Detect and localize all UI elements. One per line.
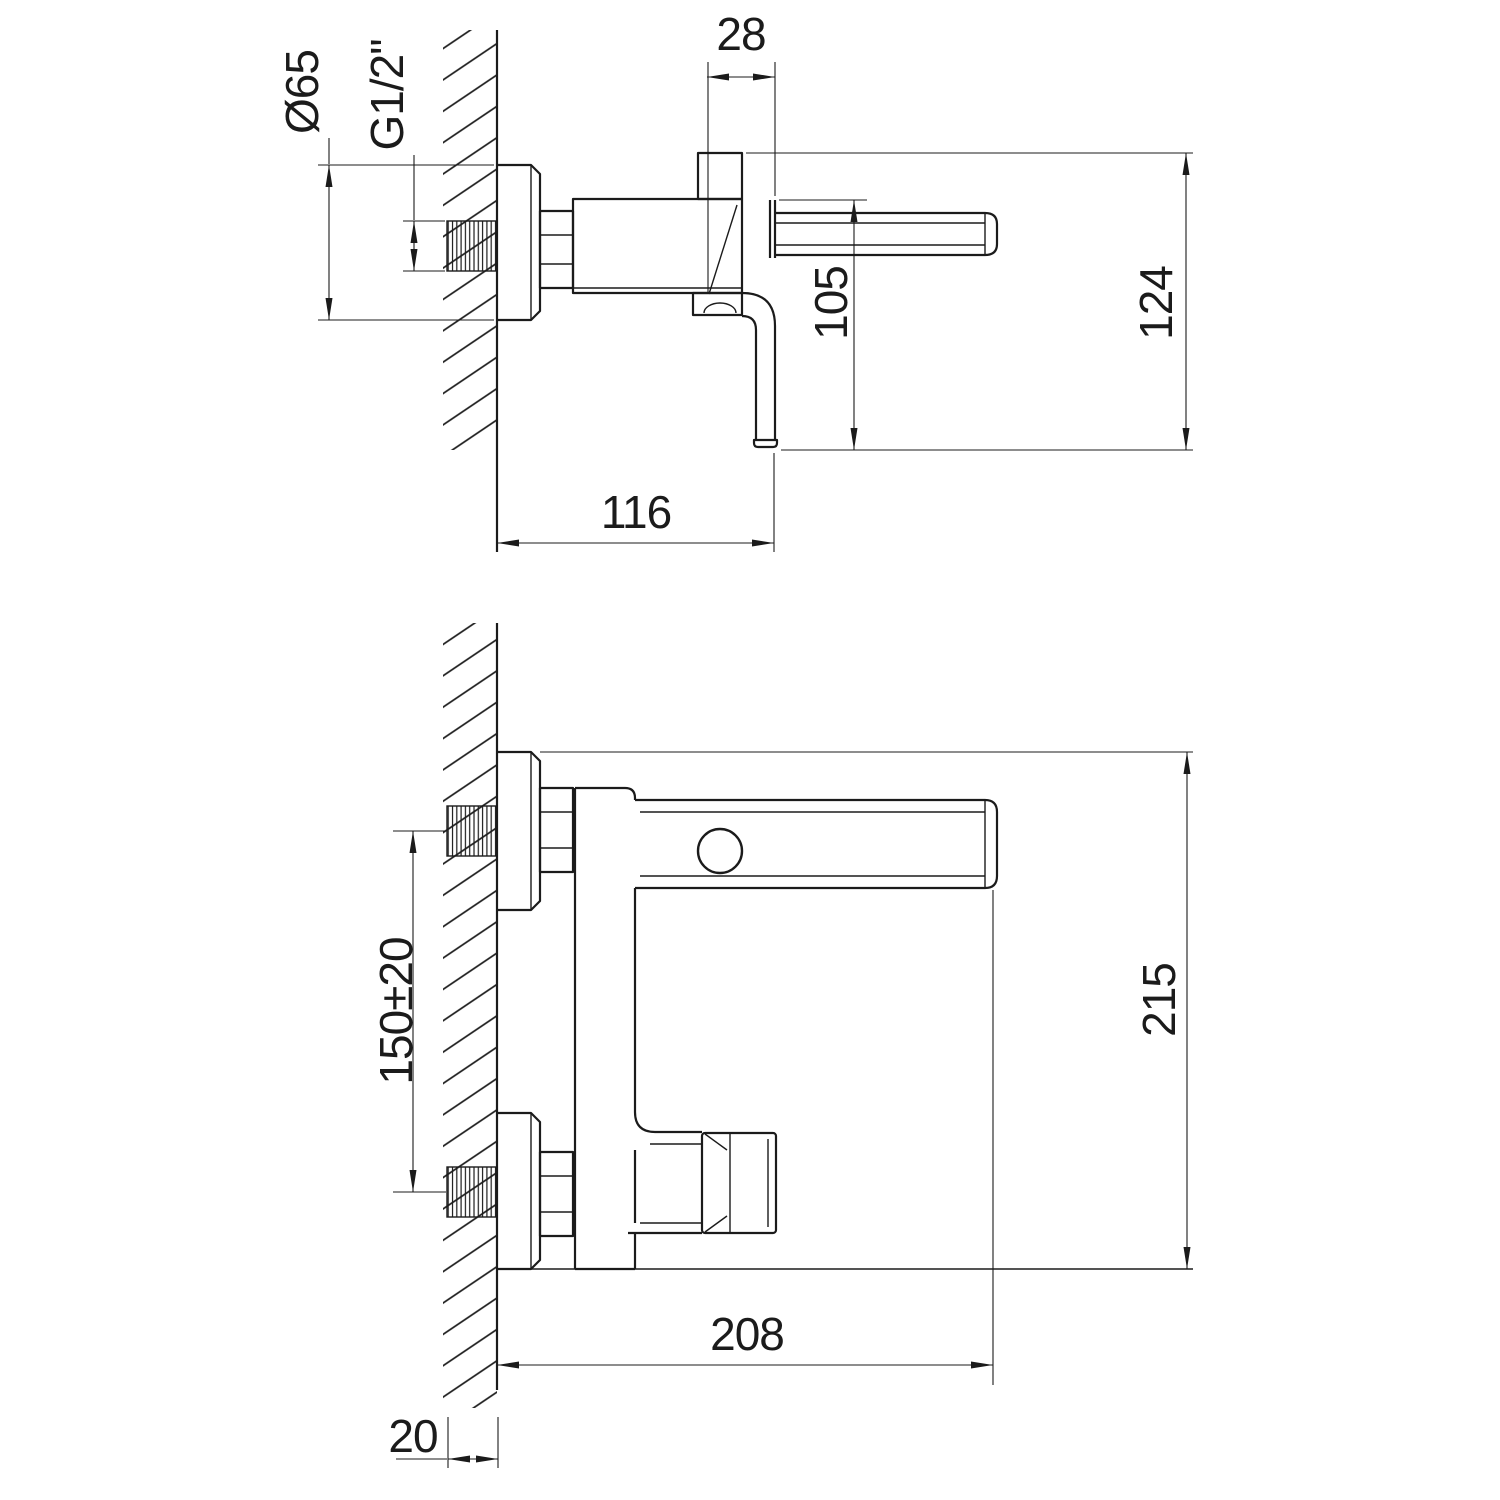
dim-label-215: 215 <box>1133 963 1185 1037</box>
dimension-215: 215 <box>540 752 1193 1269</box>
dimension-150: 150±20 <box>370 831 422 1192</box>
dim-label-diameter-65: Ø65 <box>276 50 328 134</box>
dimension-20: 20 <box>388 1410 498 1468</box>
dimension-105: 105 <box>779 200 867 450</box>
supply-thread-cold <box>447 1167 497 1217</box>
wall-section <box>443 30 497 552</box>
valve-body <box>573 62 775 315</box>
technical-drawing: Ø65 G1/2" 28 105 124 116 <box>0 0 1500 1500</box>
dimension-g-half-inch: G1/2" <box>361 39 445 271</box>
spout <box>628 1112 776 1233</box>
dim-label-116: 116 <box>601 486 671 538</box>
escutcheon-flange-hot <box>497 752 540 910</box>
handle-lever <box>635 800 997 888</box>
hex-nut-hot <box>540 788 573 872</box>
dim-label-28: 28 <box>716 8 765 60</box>
dimension-116: 116 <box>497 453 774 552</box>
drawing-page: Ø65 G1/2" 28 105 124 116 <box>0 0 1500 1500</box>
dim-label-208: 208 <box>710 1308 784 1360</box>
handle-lever <box>775 213 997 255</box>
dim-label-124: 124 <box>1130 266 1182 340</box>
side-view: Ø65 G1/2" 28 105 124 116 <box>276 8 1193 552</box>
dimension-208: 208 <box>497 890 993 1385</box>
dim-label-thread-size: G1/2" <box>361 39 413 150</box>
dim-label-150: 150±20 <box>370 937 422 1084</box>
lever-hole <box>698 829 742 873</box>
supply-thread-hot <box>447 806 497 856</box>
escutcheon-flange <box>497 165 540 320</box>
hex-nut-cold <box>540 1152 573 1236</box>
dim-label-105: 105 <box>805 266 857 340</box>
escutcheon-flange-cold <box>497 1113 540 1269</box>
valve-body <box>497 788 1193 1269</box>
wall-section <box>443 623 497 1408</box>
plan-view: 150±20 215 208 20 <box>370 623 1193 1468</box>
supply-thread <box>447 221 497 271</box>
dim-label-20: 20 <box>388 1410 437 1462</box>
hex-nut <box>540 211 573 288</box>
spout <box>742 293 777 447</box>
